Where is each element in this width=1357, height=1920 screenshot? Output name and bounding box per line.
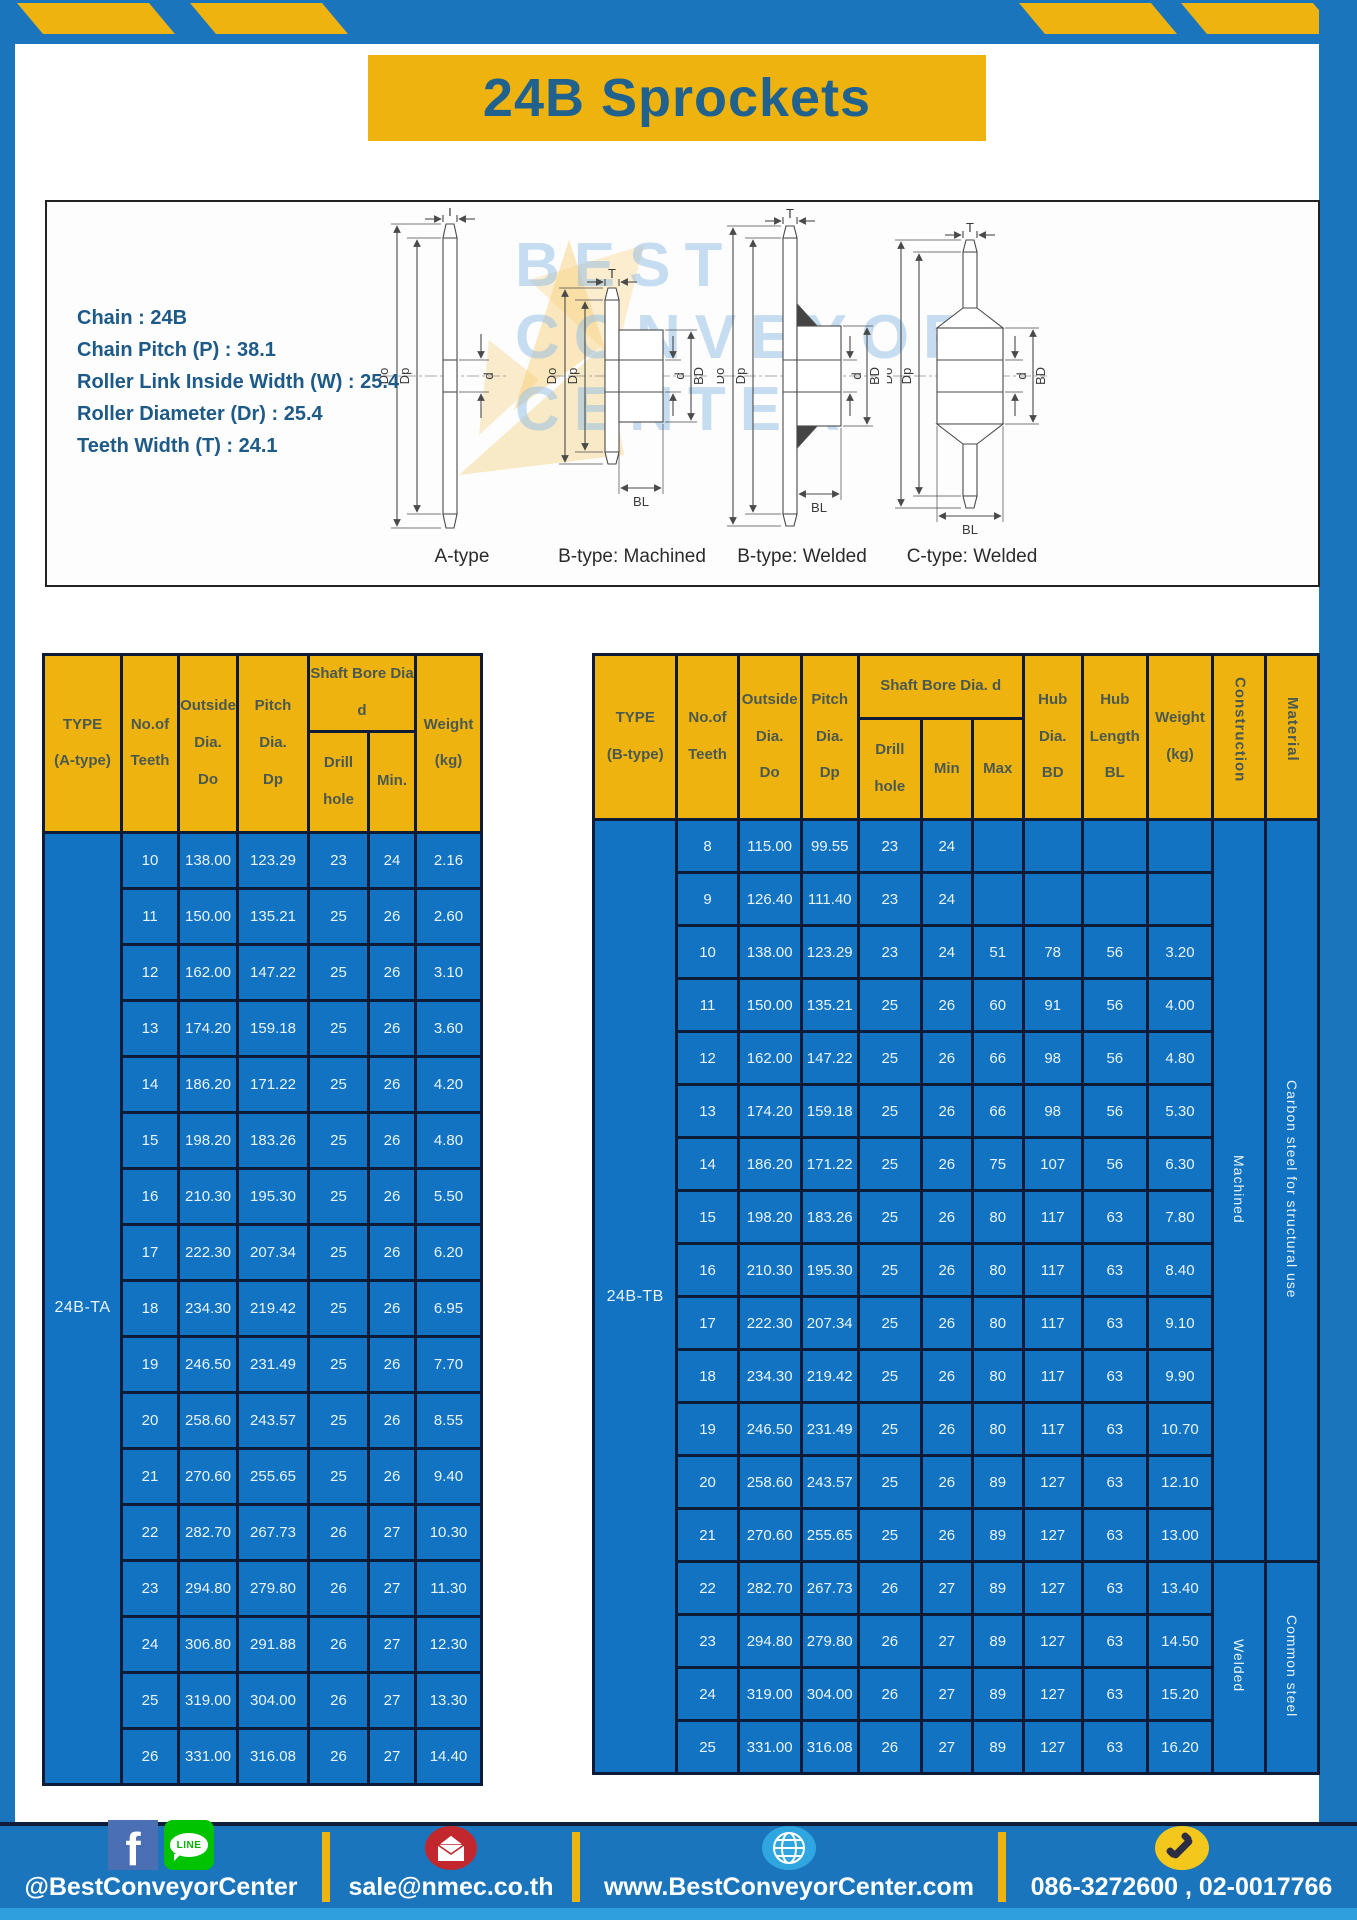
- cell: 25: [309, 1336, 369, 1392]
- cell: 25: [309, 944, 369, 1000]
- cell: [972, 820, 1023, 873]
- cell: 18: [122, 1280, 179, 1336]
- cell: 13: [122, 1000, 179, 1056]
- cell: 2.60: [416, 888, 482, 944]
- cell: 20: [677, 1456, 738, 1509]
- cell: 231.49: [238, 1336, 309, 1392]
- dim-label-t: T: [786, 208, 794, 221]
- cell: 26: [369, 944, 416, 1000]
- cell: 234.30: [179, 1280, 238, 1336]
- dim-label-dp: Dp: [565, 368, 580, 385]
- dim-label-bl: BL: [962, 522, 978, 537]
- col-header-drill-hole: Drill hole: [858, 719, 921, 820]
- col-header-outside-dia: Outside Dia. Do: [738, 655, 801, 820]
- cell: 25: [677, 1721, 738, 1774]
- cell: 23: [677, 1615, 738, 1668]
- cell: 138.00: [179, 832, 238, 888]
- cell: 331.00: [179, 1728, 238, 1784]
- cell: 207.34: [801, 1297, 858, 1350]
- cell: 60: [972, 979, 1023, 1032]
- cell: 7.80: [1147, 1191, 1212, 1244]
- cell: 23: [858, 873, 921, 926]
- cell: 91: [1023, 979, 1082, 1032]
- drawing-c-type-welded: T Do Dp d BD BL C-type: Welded: [887, 208, 1057, 580]
- cell: 243.57: [238, 1392, 309, 1448]
- cell: 26: [309, 1672, 369, 1728]
- dim-label-dp: Dp: [397, 368, 412, 385]
- table-row: 12162.00147.2225266698564.80: [594, 1032, 1319, 1085]
- spec-line: Roller Link Inside Width (W) : 25.4: [77, 366, 399, 398]
- cell: 231.49: [801, 1403, 858, 1456]
- type-cell: 24B-TB: [594, 820, 677, 1774]
- cell: 27: [369, 1672, 416, 1728]
- cell: 26: [921, 1138, 972, 1191]
- cell: 10.70: [1147, 1403, 1212, 1456]
- cell: 2.16: [416, 832, 482, 888]
- spec-line: Roller Diameter (Dr) : 25.4: [77, 398, 399, 430]
- dim-label-bd: BD: [691, 367, 706, 385]
- table-row: 19246.50231.492526801176310.70: [594, 1403, 1319, 1456]
- cell: 25: [858, 1350, 921, 1403]
- cell: 24: [369, 832, 416, 888]
- cell: 63: [1082, 1244, 1147, 1297]
- cell: 25: [858, 1456, 921, 1509]
- cell: 6.30: [1147, 1138, 1212, 1191]
- cell: 3.20: [1147, 926, 1212, 979]
- cell: 304.00: [238, 1672, 309, 1728]
- dim-label-d: d: [672, 372, 687, 379]
- cell: 26: [369, 1336, 416, 1392]
- cell: 255.65: [801, 1509, 858, 1562]
- cell: 24: [122, 1616, 179, 1672]
- cell: 195.30: [238, 1168, 309, 1224]
- dim-label-t: T: [446, 208, 454, 219]
- cell: 4.80: [1147, 1032, 1212, 1085]
- globe-icon[interactable]: [762, 1826, 816, 1870]
- hazard-stripe: [17, 3, 175, 34]
- cell: 126.40: [738, 873, 801, 926]
- table-row: 14186.20171.22252675107566.30: [594, 1138, 1319, 1191]
- right-border-band: [1319, 0, 1357, 1920]
- cell: 21: [677, 1509, 738, 1562]
- drawing-a-type: T Do Dp d A-type: [377, 208, 547, 580]
- cell: 210.30: [738, 1244, 801, 1297]
- col-header-construction: Construction: [1213, 655, 1266, 820]
- cell: 17: [122, 1224, 179, 1280]
- cell: 16: [122, 1168, 179, 1224]
- table-row: 17222.30207.34252680117639.10: [594, 1297, 1319, 1350]
- cell: 24: [921, 820, 972, 873]
- cell: 25: [309, 1168, 369, 1224]
- col-header-weight: Weight (kg): [1147, 655, 1212, 820]
- cell: 24: [921, 926, 972, 979]
- cell: 10: [122, 832, 179, 888]
- table-row: 24319.00304.002627891276315.20: [594, 1668, 1319, 1721]
- cell: 183.26: [238, 1112, 309, 1168]
- cell: 25: [309, 1056, 369, 1112]
- cell: 80: [972, 1297, 1023, 1350]
- cell: 16.20: [1147, 1721, 1212, 1774]
- drawing-caption: A-type: [435, 546, 490, 568]
- cell: 23: [309, 832, 369, 888]
- cell: 56: [1082, 1032, 1147, 1085]
- col-header-pitch-dia: Pitch Dia. Dp: [238, 655, 309, 833]
- cell: 162.00: [179, 944, 238, 1000]
- cell: 25: [309, 1112, 369, 1168]
- cell: 270.60: [738, 1509, 801, 1562]
- cell: 127: [1023, 1721, 1082, 1774]
- cell: 11: [677, 979, 738, 1032]
- cell: 127: [1023, 1562, 1082, 1615]
- cell: 246.50: [738, 1403, 801, 1456]
- cell: 26: [122, 1728, 179, 1784]
- cell: 13.30: [416, 1672, 482, 1728]
- table-row: 24B-TA10138.00123.2923242.16: [44, 832, 482, 888]
- footer: f LINE @BestConveyorCenter sale@nmec.co.…: [0, 1822, 1357, 1920]
- cell: 26: [369, 1056, 416, 1112]
- cell: 25: [858, 1032, 921, 1085]
- cell: 4.00: [1147, 979, 1212, 1032]
- dim-label-bd: BD: [867, 367, 882, 385]
- cell: 75: [972, 1138, 1023, 1191]
- cell: 210.30: [179, 1168, 238, 1224]
- cell: 9: [677, 873, 738, 926]
- col-header-max: Max: [972, 719, 1023, 820]
- cell: 25: [309, 1224, 369, 1280]
- facebook-icon[interactable]: f: [108, 1820, 158, 1870]
- line-icon[interactable]: LINE: [164, 1820, 214, 1870]
- cell: 25: [309, 1448, 369, 1504]
- hazard-stripe: [1019, 3, 1177, 34]
- phone-icon[interactable]: [1155, 1826, 1209, 1870]
- sprocket-drawings: T Do Dp d A-type: [377, 208, 1057, 580]
- dim-label-do: Do: [887, 368, 895, 385]
- cell: 14: [677, 1138, 738, 1191]
- dim-label-bl: BL: [633, 494, 649, 509]
- cell: 319.00: [179, 1672, 238, 1728]
- cell: 27: [369, 1728, 416, 1784]
- hazard-stripe: [190, 3, 348, 34]
- cell: 26: [921, 1456, 972, 1509]
- cell: 15: [122, 1112, 179, 1168]
- cell: 6.20: [416, 1224, 482, 1280]
- type-cell: 24B-TA: [44, 832, 122, 1784]
- table-row: 15198.20183.26252680117637.80: [594, 1191, 1319, 1244]
- cell: 27: [921, 1615, 972, 1668]
- cell: 138.00: [738, 926, 801, 979]
- cell: [1147, 873, 1212, 926]
- cell: 26: [369, 1000, 416, 1056]
- cell: 27: [369, 1616, 416, 1672]
- cell: 26: [921, 979, 972, 1032]
- cell: 111.40: [801, 873, 858, 926]
- cell: 19: [677, 1403, 738, 1456]
- drawing-caption: B-type: Welded: [737, 546, 867, 568]
- cell: 198.20: [738, 1191, 801, 1244]
- table-row: 18234.30219.42252680117639.90: [594, 1350, 1319, 1403]
- cell: 99.55: [801, 820, 858, 873]
- cell: 89: [972, 1615, 1023, 1668]
- cell: 123.29: [238, 832, 309, 888]
- cell: 186.20: [738, 1138, 801, 1191]
- cell: 25: [309, 1392, 369, 1448]
- cell: 306.80: [179, 1616, 238, 1672]
- cell: 26: [921, 1085, 972, 1138]
- cell: 270.60: [179, 1448, 238, 1504]
- cell: 26: [309, 1560, 369, 1616]
- cell: 8.40: [1147, 1244, 1212, 1297]
- website-url[interactable]: www.BestConveyorCenter.com: [604, 1873, 974, 1902]
- cell: 234.30: [738, 1350, 801, 1403]
- diagram-panel: BEST CONVEYOR CENTER Chain : 24B Chain P…: [45, 200, 1320, 587]
- cell: 27: [921, 1562, 972, 1615]
- cell: 80: [972, 1403, 1023, 1456]
- cell: 222.30: [738, 1297, 801, 1350]
- cell: 89: [972, 1562, 1023, 1615]
- email-address[interactable]: sale@nmec.co.th: [348, 1873, 553, 1902]
- cell: 63: [1082, 1615, 1147, 1668]
- page-title: 24B Sprockets: [483, 67, 871, 129]
- cell: 282.70: [179, 1504, 238, 1560]
- cell: 80: [972, 1350, 1023, 1403]
- cell: 80: [972, 1191, 1023, 1244]
- dim-label-d: d: [849, 372, 864, 379]
- cell: [1023, 873, 1082, 926]
- cell: 89: [972, 1668, 1023, 1721]
- cell: 25: [858, 1191, 921, 1244]
- cell: 26: [369, 1112, 416, 1168]
- col-header-shaft-bore: Shaft Bore Dia. d: [858, 655, 1023, 719]
- cell: 66: [972, 1032, 1023, 1085]
- cell: 13.40: [1147, 1562, 1212, 1615]
- cell: 26: [309, 1616, 369, 1672]
- cell: [1082, 873, 1147, 926]
- col-header-type: TYPE (A-type): [44, 655, 122, 833]
- cell: 14: [122, 1056, 179, 1112]
- cell: 22: [122, 1504, 179, 1560]
- cell: 294.80: [179, 1560, 238, 1616]
- cell: 171.22: [801, 1138, 858, 1191]
- cell: 198.20: [179, 1112, 238, 1168]
- cell: 17: [677, 1297, 738, 1350]
- spec-line: Chain Pitch (P) : 38.1: [77, 334, 399, 366]
- cell: 19: [122, 1336, 179, 1392]
- cell: 186.20: [179, 1056, 238, 1112]
- cell: 89: [972, 1509, 1023, 1562]
- cell: 127: [1023, 1615, 1082, 1668]
- construction-cell: Machined: [1213, 820, 1266, 1562]
- cell: 135.21: [801, 979, 858, 1032]
- cell: 26: [858, 1562, 921, 1615]
- cell: [972, 873, 1023, 926]
- cell: 107: [1023, 1138, 1082, 1191]
- col-header-hub-length: Hub Length BL: [1082, 655, 1147, 820]
- cell: 135.21: [238, 888, 309, 944]
- cell: 279.80: [238, 1560, 309, 1616]
- cell: 258.60: [179, 1392, 238, 1448]
- page-title-banner: 24B Sprockets: [368, 55, 986, 141]
- dim-label-d: d: [481, 372, 496, 379]
- cell: 26: [369, 1448, 416, 1504]
- material-cell: Common steel: [1265, 1562, 1318, 1774]
- col-header-teeth: No.of Teeth: [122, 655, 179, 833]
- cell: 127: [1023, 1509, 1082, 1562]
- table-row: 21270.60255.652526891276313.00: [594, 1509, 1319, 1562]
- phone-numbers[interactable]: 086-3272600 , 02-0017766: [1031, 1873, 1333, 1902]
- col-header-weight: Weight (kg): [416, 655, 482, 833]
- cell: 222.30: [179, 1224, 238, 1280]
- cell: 25: [858, 979, 921, 1032]
- cell: 98: [1023, 1085, 1082, 1138]
- cell: 26: [369, 1224, 416, 1280]
- construction-cell: Welded: [1213, 1562, 1266, 1774]
- footer-divider: [322, 1832, 330, 1902]
- footer-bar: f LINE @BestConveyorCenter sale@nmec.co.…: [0, 1826, 1357, 1908]
- cell: 80: [972, 1244, 1023, 1297]
- dim-label-do: Do: [717, 368, 727, 385]
- cell: 78: [1023, 926, 1082, 979]
- cell: 56: [1082, 926, 1147, 979]
- cell: 89: [972, 1456, 1023, 1509]
- table-row: 22282.70267.732627891276313.40WeldedComm…: [594, 1562, 1319, 1615]
- cell: 255.65: [238, 1448, 309, 1504]
- cell: 27: [369, 1560, 416, 1616]
- cell: 9.90: [1147, 1350, 1212, 1403]
- left-border-band: [0, 0, 15, 1920]
- cell: 4.20: [416, 1056, 482, 1112]
- cell: 15: [677, 1191, 738, 1244]
- cell: 25: [858, 1297, 921, 1350]
- cell: 14.50: [1147, 1615, 1212, 1668]
- cell: 10.30: [416, 1504, 482, 1560]
- hazard-stripe: [1181, 3, 1339, 34]
- cell: 183.26: [801, 1191, 858, 1244]
- cell: 63: [1082, 1456, 1147, 1509]
- email-icon[interactable]: [425, 1826, 477, 1870]
- cell: 27: [369, 1504, 416, 1560]
- footer-social-group: f LINE @BestConveyorCenter: [0, 1826, 322, 1908]
- cell: 11.30: [416, 1560, 482, 1616]
- cell: 56: [1082, 1138, 1147, 1191]
- cell: 159.18: [801, 1085, 858, 1138]
- top-border-band: [0, 0, 1357, 44]
- footer-phone-group: 086-3272600 , 02-0017766: [1006, 1826, 1357, 1908]
- cell: 219.42: [801, 1350, 858, 1403]
- cell: 23: [122, 1560, 179, 1616]
- cell: 127: [1023, 1456, 1082, 1509]
- footer-divider: [998, 1832, 1006, 1902]
- cell: 294.80: [738, 1615, 801, 1668]
- cell: 14.40: [416, 1728, 482, 1784]
- cell: 117: [1023, 1191, 1082, 1244]
- sprocket-table-b-type: TYPE (B-type) No.of Teeth Outside Dia. D…: [592, 653, 1320, 1775]
- cell: 22: [677, 1562, 738, 1615]
- cell: 3.10: [416, 944, 482, 1000]
- cell: 12: [677, 1032, 738, 1085]
- social-handle[interactable]: @BestConveyorCenter: [24, 1873, 297, 1902]
- dim-label-dp: Dp: [899, 368, 914, 385]
- cell: 159.18: [238, 1000, 309, 1056]
- cell: 20: [122, 1392, 179, 1448]
- cell: 56: [1082, 979, 1147, 1032]
- dim-label-dp: Dp: [733, 368, 748, 385]
- cell: 195.30: [801, 1244, 858, 1297]
- cell: 174.20: [738, 1085, 801, 1138]
- cell: 7.70: [416, 1336, 482, 1392]
- cell: 51: [972, 926, 1023, 979]
- dim-label-t: T: [966, 220, 974, 235]
- cell: 8: [677, 820, 738, 873]
- cell: 171.22: [238, 1056, 309, 1112]
- table-row: 24B-TB8115.0099.552324MachinedCarbon ste…: [594, 820, 1319, 873]
- cell: 9.40: [416, 1448, 482, 1504]
- cell: 26: [309, 1728, 369, 1784]
- cell: 11: [122, 888, 179, 944]
- cell: 246.50: [179, 1336, 238, 1392]
- drawing-caption: B-type: Machined: [558, 546, 706, 568]
- cell: 63: [1082, 1403, 1147, 1456]
- col-header-min: Min.: [369, 731, 416, 832]
- cell: 316.08: [801, 1721, 858, 1774]
- cell: 23: [858, 926, 921, 979]
- cell: 26: [369, 1392, 416, 1448]
- col-header-pitch-dia: Pitch Dia. Dp: [801, 655, 858, 820]
- cell: 26: [921, 1191, 972, 1244]
- col-header-type: TYPE (B-type): [594, 655, 677, 820]
- cell: 63: [1082, 1668, 1147, 1721]
- cell: 25: [122, 1672, 179, 1728]
- drawing-caption: C-type: Welded: [907, 546, 1038, 568]
- cell: 219.42: [238, 1280, 309, 1336]
- cell: 319.00: [738, 1668, 801, 1721]
- cell: 316.08: [238, 1728, 309, 1784]
- cell: 5.30: [1147, 1085, 1212, 1138]
- cell: 26: [921, 1032, 972, 1085]
- table-row: 20258.60243.572526891276312.10: [594, 1456, 1319, 1509]
- cell: [1023, 820, 1082, 873]
- cell: 5.50: [416, 1168, 482, 1224]
- cell: 26: [858, 1615, 921, 1668]
- cell: 23: [858, 820, 921, 873]
- cell: 66: [972, 1085, 1023, 1138]
- cell: 147.22: [801, 1032, 858, 1085]
- cell: 147.22: [238, 944, 309, 1000]
- cell: 26: [369, 1280, 416, 1336]
- cell: 162.00: [738, 1032, 801, 1085]
- cell: 117: [1023, 1297, 1082, 1350]
- cell: 25: [309, 1280, 369, 1336]
- cell: 63: [1082, 1509, 1147, 1562]
- cell: 25: [858, 1138, 921, 1191]
- table-row: 13174.20159.1825266698565.30: [594, 1085, 1319, 1138]
- table-row: 23294.80279.802627891276314.50: [594, 1615, 1319, 1668]
- dim-label-do: Do: [547, 368, 559, 385]
- cell: 27: [921, 1721, 972, 1774]
- cell: 267.73: [238, 1504, 309, 1560]
- cell: 174.20: [179, 1000, 238, 1056]
- footer-website-group: www.BestConveyorCenter.com: [580, 1826, 998, 1908]
- cell: 26: [309, 1504, 369, 1560]
- cell: 26: [921, 1403, 972, 1456]
- spec-line: Teeth Width (T) : 24.1: [77, 430, 399, 462]
- dim-label-d: d: [1014, 372, 1029, 379]
- cell: 12.30: [416, 1616, 482, 1672]
- cell: 207.34: [238, 1224, 309, 1280]
- cell: 26: [858, 1668, 921, 1721]
- cell: 9.10: [1147, 1297, 1212, 1350]
- col-header-teeth: No.of Teeth: [677, 655, 738, 820]
- cell: 25: [858, 1085, 921, 1138]
